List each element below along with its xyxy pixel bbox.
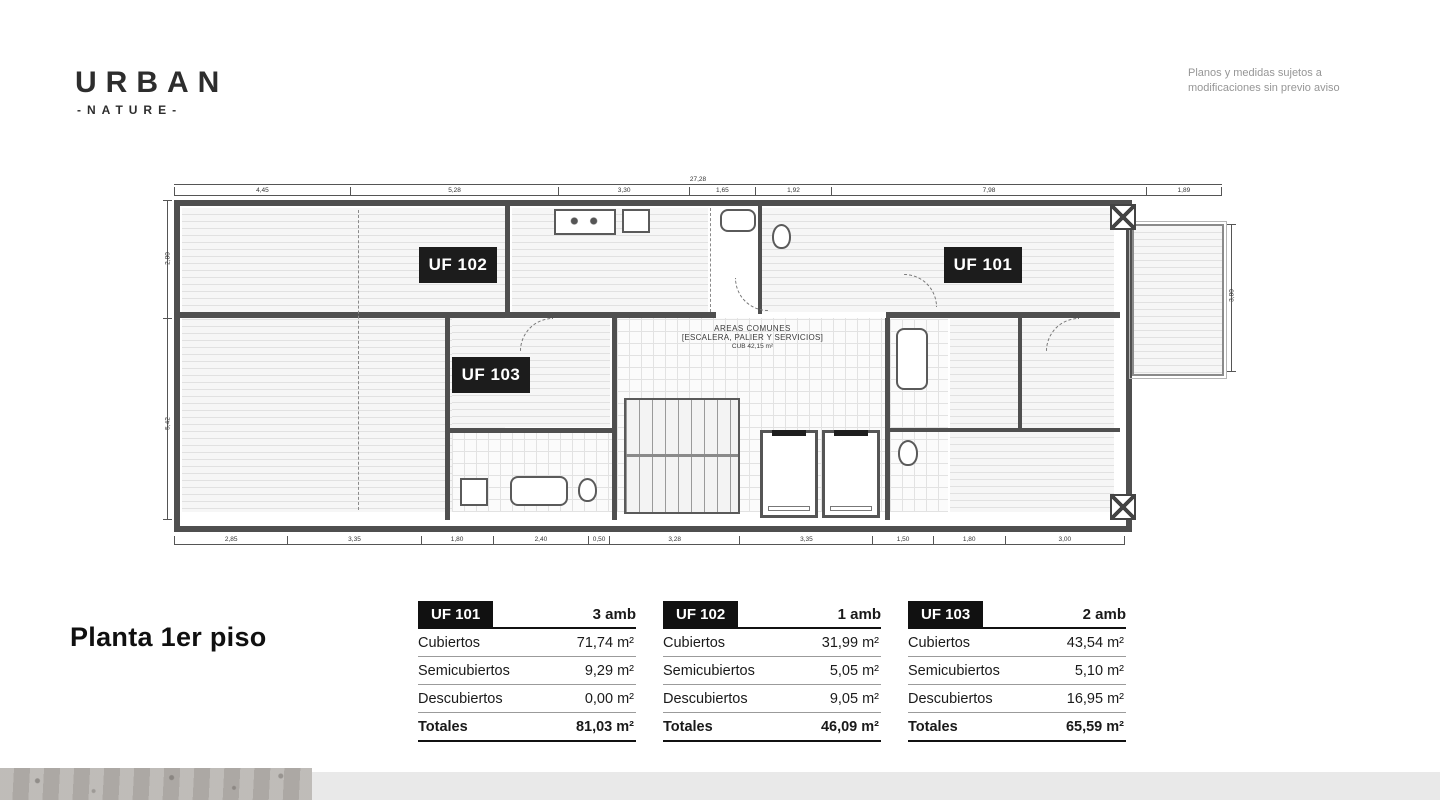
brand-name: URBAN xyxy=(75,66,228,100)
dim-label: 0,50 xyxy=(589,536,609,543)
dim-label: 7,98 xyxy=(832,187,1146,194)
dim-segment: 3,30 xyxy=(558,187,689,196)
unit-101-floor xyxy=(762,208,1114,312)
elevator-2 xyxy=(822,430,880,518)
row-label: Descubiertos xyxy=(418,691,503,707)
row-value: 71,74 m² xyxy=(577,635,634,651)
disclaimer-line1: Planos y medidas sujetos a xyxy=(1188,66,1418,81)
dim-segment: 1,80 xyxy=(933,536,1005,545)
column-marker xyxy=(1110,204,1136,230)
dim-label: 2,80 xyxy=(165,244,172,274)
dim-segment: 2,40 xyxy=(493,536,589,545)
table-unit-badge: UF 102 xyxy=(663,601,738,627)
table-row: Semicubiertos5,10 m² xyxy=(908,657,1126,685)
unit-label-uf102: UF 102 xyxy=(419,247,497,283)
table-header: UF 101 3 amb xyxy=(418,601,636,629)
total-label: Totales xyxy=(908,719,958,735)
table-amb: 2 amb xyxy=(1083,606,1126,627)
table-row: Descubiertos9,05 m² xyxy=(663,685,881,713)
total-label: Totales xyxy=(663,719,713,735)
fixture-kitchen-counter xyxy=(554,209,616,235)
table-unit-badge: UF 103 xyxy=(908,601,983,627)
total-value: 65,59 m² xyxy=(1066,719,1124,735)
page-title: Planta 1er piso xyxy=(70,622,267,653)
dim-label: 1,80 xyxy=(934,536,1005,543)
footer-concrete-texture xyxy=(0,768,312,800)
dim-segment: 1,50 xyxy=(872,536,932,545)
dim-segment: 7,98 xyxy=(831,187,1146,196)
fixture-toilet xyxy=(772,224,791,249)
elevator-1 xyxy=(760,430,818,518)
dim-tick xyxy=(163,519,172,520)
staircase xyxy=(624,398,740,514)
fixture-stove-burners xyxy=(562,214,606,228)
dim-segment: 0,50 xyxy=(588,536,609,545)
table-total-row: Totales81,03 m² xyxy=(418,713,636,742)
table-unit-badge: UF 101 xyxy=(418,601,493,627)
dim-label: 5,28 xyxy=(351,187,558,194)
area-table-uf103: UF 103 2 amb Cubiertos43,54 m² Semicubie… xyxy=(908,601,1126,742)
unit-101-bedroom-floor xyxy=(950,319,1114,512)
table-amb: 3 amb xyxy=(593,606,636,627)
dim-row-top: 4,45 5,28 3,30 1,65 1,92 7,98 1,89 xyxy=(174,187,1222,196)
dim-total-top: 27,28 xyxy=(174,176,1222,185)
table-row: Cubiertos43,54 m² xyxy=(908,629,1126,657)
row-value: 5,05 m² xyxy=(830,663,879,679)
dim-segment: 5,28 xyxy=(350,187,558,196)
table-row: Descubiertos0,00 m² xyxy=(418,685,636,713)
dim-tick xyxy=(1227,371,1236,372)
brand-tagline: -NATURE- xyxy=(75,103,228,117)
row-value: 9,05 m² xyxy=(830,691,879,707)
unit-label-uf103: UF 103 xyxy=(452,357,530,393)
row-label: Cubiertos xyxy=(418,635,480,651)
table-total-row: Totales65,59 m² xyxy=(908,713,1126,742)
dashed-line xyxy=(710,208,711,312)
wall xyxy=(886,312,1120,318)
disclaimer-line2: modificaciones sin previo aviso xyxy=(1188,81,1418,96)
row-value: 0,00 m² xyxy=(585,691,634,707)
dim-label: 1,50 xyxy=(873,536,932,543)
row-value: 43,54 m² xyxy=(1067,635,1124,651)
row-label: Descubiertos xyxy=(663,691,748,707)
table-row: Semicubiertos5,05 m² xyxy=(663,657,881,685)
wall xyxy=(1018,318,1022,430)
column-marker xyxy=(1110,494,1136,520)
fixture-washer xyxy=(460,478,488,506)
common-area-line1: AREAS COMUNES xyxy=(630,324,875,333)
dim-segment: 4,45 xyxy=(174,187,350,196)
dim-segment: 1,65 xyxy=(689,187,755,196)
dim-label: 3,30 xyxy=(559,187,689,194)
dim-label: 3,35 xyxy=(288,536,420,543)
fixture-sink xyxy=(622,209,650,233)
floor-plan: 27,28 4,45 5,28 3,30 1,65 1,92 7,98 1,89… xyxy=(160,178,1240,570)
row-label: Semicubiertos xyxy=(663,663,755,679)
wall xyxy=(890,428,1120,432)
row-value: 16,95 m² xyxy=(1067,691,1124,707)
fixture-toilet xyxy=(578,478,597,502)
row-label: Cubiertos xyxy=(908,635,970,651)
stair-landing xyxy=(626,454,738,457)
row-value: 5,10 m² xyxy=(1075,663,1124,679)
dim-col-right: 3,80 xyxy=(1226,224,1238,372)
dim-tick xyxy=(163,200,172,201)
common-area-line3: CUB 42,15 m² xyxy=(630,343,875,350)
dim-segment: 3,35 xyxy=(287,536,420,545)
elevator-rail xyxy=(830,506,872,511)
table-row: Cubiertos31,99 m² xyxy=(663,629,881,657)
dim-label: 1,89 xyxy=(1147,187,1221,194)
fixture-bathtub xyxy=(896,328,928,390)
brand-logo: URBAN -NATURE- xyxy=(75,66,228,117)
table-total-row: Totales46,09 m² xyxy=(663,713,881,742)
dim-tick xyxy=(163,318,172,319)
dim-total-top-label: 27,28 xyxy=(174,176,1222,183)
disclaimer-note: Planos y medidas sujetos a modificacione… xyxy=(1188,66,1418,97)
dim-row-bottom: 2,85 3,35 1,80 2,40 0,50 3,28 3,35 1,50 … xyxy=(174,536,1125,545)
dim-label: 3,80 xyxy=(1229,281,1236,311)
row-label: Semicubiertos xyxy=(908,663,1000,679)
dim-label: 1,92 xyxy=(756,187,831,194)
dim-label: 1,80 xyxy=(422,536,493,543)
row-value: 9,29 m² xyxy=(585,663,634,679)
wall xyxy=(612,318,617,520)
dim-segment: 1,92 xyxy=(755,187,831,196)
dim-segment: 3,00 xyxy=(1005,536,1125,545)
table-header: UF 103 2 amb xyxy=(908,601,1126,629)
dim-col-left: 2,80 5,42 xyxy=(162,200,174,520)
elevator-rail xyxy=(768,506,810,511)
unit-label-uf101: UF 101 xyxy=(944,247,1022,283)
common-area-line2: [ESCALERA, PALIER Y SERVICIOS] xyxy=(630,333,875,342)
total-label: Totales xyxy=(418,719,468,735)
table-header: UF 102 1 amb xyxy=(663,601,881,629)
table-row: Descubiertos16,95 m² xyxy=(908,685,1126,713)
dim-label: 2,40 xyxy=(494,536,589,543)
dim-label: 3,28 xyxy=(610,536,739,543)
dim-tick xyxy=(1227,224,1236,225)
wall xyxy=(445,318,450,520)
table-amb: 1 amb xyxy=(838,606,881,627)
elevator-door xyxy=(772,430,805,436)
dim-label: 4,45 xyxy=(175,187,350,194)
row-label: Semicubiertos xyxy=(418,663,510,679)
dim-segment: 3,35 xyxy=(739,536,872,545)
dim-segment: 2,85 xyxy=(174,536,287,545)
dashed-line xyxy=(358,210,359,510)
total-value: 46,09 m² xyxy=(821,719,879,735)
dim-label: 1,65 xyxy=(690,187,755,194)
total-value: 81,03 m² xyxy=(576,719,634,735)
common-area-caption: AREAS COMUNES [ESCALERA, PALIER Y SERVIC… xyxy=(630,324,875,350)
wall xyxy=(505,206,510,314)
dim-label: 2,85 xyxy=(175,536,287,543)
elevator-door xyxy=(834,430,867,436)
dim-segment: 1,80 xyxy=(421,536,493,545)
dim-label: 5,42 xyxy=(165,409,172,439)
area-table-uf101: UF 101 3 amb Cubiertos71,74 m² Semicubie… xyxy=(418,601,636,742)
wall xyxy=(885,318,890,520)
dim-segment: 1,89 xyxy=(1146,187,1222,196)
dim-label: 3,35 xyxy=(740,536,872,543)
row-value: 31,99 m² xyxy=(822,635,879,651)
fixture-bathtub xyxy=(720,209,756,232)
table-row: Cubiertos71,74 m² xyxy=(418,629,636,657)
area-table-uf102: UF 102 1 amb Cubiertos31,99 m² Semicubie… xyxy=(663,601,881,742)
row-label: Descubiertos xyxy=(908,691,993,707)
balcony-deck xyxy=(1132,224,1224,376)
row-label: Cubiertos xyxy=(663,635,725,651)
fixture-toilet xyxy=(898,440,918,466)
dim-segment: 3,28 xyxy=(609,536,739,545)
table-row: Semicubiertos9,29 m² xyxy=(418,657,636,685)
fixture-bathtub xyxy=(510,476,568,506)
wall xyxy=(450,428,615,433)
dim-label: 3,00 xyxy=(1006,536,1124,543)
